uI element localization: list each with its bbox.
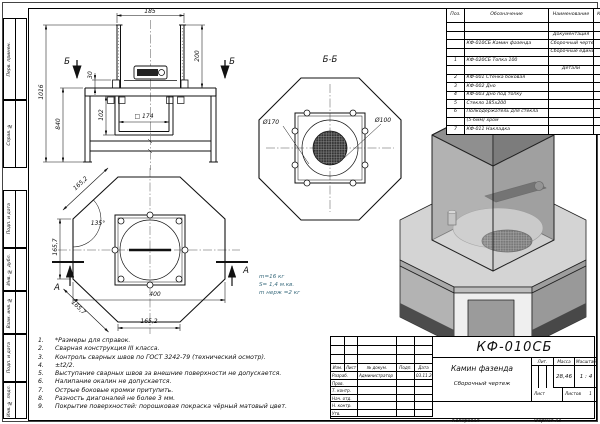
parts-pos xyxy=(447,48,465,57)
change-log-cell xyxy=(415,346,433,355)
parts-designation xyxy=(465,48,549,57)
sig-sign xyxy=(397,395,415,403)
note-text: Острые боковые кромки притупить. xyxy=(55,387,173,395)
signature-area: Изм.Лист№ докум.Подп.Дата Разраб.Админис… xyxy=(331,337,433,417)
section-label: Б xyxy=(229,58,235,67)
parts-designation: КФ-010СБ Камин фазенда xyxy=(465,40,549,49)
change-log-cell xyxy=(345,337,358,346)
sig-sign xyxy=(397,402,415,410)
margin-cell-label: Перв. примен. xyxy=(7,42,12,77)
parts-designation: Полкодержатель для стекла xyxy=(465,108,549,117)
margin-cell-sign-col xyxy=(16,101,26,167)
signature-row: Пров. xyxy=(331,380,433,388)
parts-name xyxy=(549,57,594,66)
parts-pos xyxy=(447,23,465,32)
dim-label: 400 xyxy=(149,292,160,298)
margin-cell-label-col: Подп. и дата xyxy=(4,335,16,381)
margin-cell-sign-col xyxy=(16,191,26,247)
parts-row: Документация xyxy=(447,31,600,40)
company-cell xyxy=(433,401,596,419)
sig-docnum: Администратор xyxy=(358,372,397,380)
parts-pos: 1 xyxy=(447,57,465,66)
parts-designation: КФ-001 Стенка боковая xyxy=(465,74,549,83)
parts-qty: 1 xyxy=(594,83,600,92)
parts-designation: КФ-011 Накладка xyxy=(465,126,549,135)
sig-sign xyxy=(397,372,415,380)
signature-header-cell: № докум. xyxy=(358,364,397,372)
iso-view xyxy=(400,104,586,344)
note-number: 1. xyxy=(38,337,48,345)
parts-name: Сборочные единицы xyxy=(549,48,594,57)
sig-date xyxy=(415,380,433,388)
change-log-cell xyxy=(345,346,358,355)
parts-table: Поз.ОбозначениеНаименованиеКол. Документ… xyxy=(446,8,600,135)
parts-name xyxy=(549,108,594,117)
margin-cell-sign-col xyxy=(16,249,26,290)
sheets-label: Листов xyxy=(563,388,584,401)
parts-row: 2КФ-001 Стенка боковая2 xyxy=(447,74,600,83)
note-number: 6. xyxy=(38,378,48,386)
document-number: КФ-010СБ xyxy=(433,337,596,358)
signature-row: Разраб.Администратор03.11.20 xyxy=(331,372,433,380)
note-number: 9. xyxy=(38,403,48,411)
change-log-cell xyxy=(358,346,397,355)
parts-name xyxy=(549,91,594,100)
notes-list: 1.*Размеры для справок.2.Сварная констру… xyxy=(38,337,338,412)
parts-qty: 4 xyxy=(594,100,600,109)
note-number: 2. xyxy=(38,345,48,353)
change-log-cell xyxy=(397,355,415,364)
parts-row: 4КФ-003 Дно под топку1 xyxy=(447,91,600,100)
parts-row: Детали xyxy=(447,65,600,74)
margin-cell-sign-col xyxy=(16,292,26,333)
parts-qty xyxy=(594,65,600,74)
parts-pos xyxy=(447,31,465,40)
signature-row: Утв. xyxy=(331,410,433,418)
sig-date xyxy=(415,410,433,418)
parts-col-header: Обозначение xyxy=(465,9,549,23)
change-log-cell xyxy=(397,346,415,355)
change-log-cell xyxy=(358,355,397,364)
note-number: 3. xyxy=(38,354,48,362)
document-type: Сборочный чертеж xyxy=(433,381,531,387)
signature-header-cell: Лист xyxy=(345,364,358,372)
parts-pos: 7 xyxy=(447,126,465,135)
parts-designation: КФ-020СБ Топка 100 xyxy=(465,57,549,66)
parts-row: Сборочные единицы xyxy=(447,48,600,57)
signature-header-cell: Изм. xyxy=(331,364,345,372)
section-label: Б xyxy=(64,58,70,67)
sig-docnum xyxy=(358,402,397,410)
parts-pos: 3 xyxy=(447,83,465,92)
scale-value: 1 : 4 xyxy=(575,366,597,388)
sig-docnum xyxy=(358,387,397,395)
change-log-grid xyxy=(331,337,433,364)
sig-date xyxy=(415,395,433,403)
note-number: 4. xyxy=(38,362,48,370)
dim-label: Ø100 xyxy=(375,118,391,124)
change-log-cell xyxy=(345,355,358,364)
dim-label: 165,7 xyxy=(53,238,59,255)
dim-label: 102 xyxy=(99,109,105,120)
margin-cell-label-col: Взам. инв. № xyxy=(4,292,16,333)
annotation-line: m=16 кг xyxy=(259,275,284,281)
parts-qty xyxy=(594,23,600,32)
mass-value: 28,46 xyxy=(554,366,575,388)
annotation-line: S= 1,4 м.кв. xyxy=(259,283,294,289)
margin-cell-label: Взам. инв. № xyxy=(7,297,12,328)
change-log-cell xyxy=(331,346,345,355)
dim-label: 30 xyxy=(88,71,94,79)
note-number: 8. xyxy=(38,395,48,403)
margin-cell-label: Подп. и дата xyxy=(7,203,12,234)
dim-label: 135° xyxy=(91,221,105,227)
parts-row: КФ-010СБ Камин фазендаСборочный чертеж1 xyxy=(447,40,600,49)
margin-cell: Подп. и дата xyxy=(3,190,27,248)
dim-label: Ø170 xyxy=(263,120,279,126)
parts-designation: (5-6мм) хром xyxy=(465,117,549,126)
note-item: 6.Налипание окалин не допускается. xyxy=(38,378,338,386)
change-log-cell xyxy=(358,337,397,346)
lit-cell xyxy=(539,366,546,388)
sig-date xyxy=(415,387,433,395)
parts-name: Документация xyxy=(549,31,594,40)
parts-qty: 1 xyxy=(594,91,600,100)
signature-rows: Разраб.Администратор03.11.20Пров.Т. конт… xyxy=(331,372,433,417)
signature-row: Нач. отд. xyxy=(331,395,433,403)
dim-label: 165,2 xyxy=(140,319,157,325)
parts-pos xyxy=(447,40,465,49)
parts-name xyxy=(549,100,594,109)
parts-qty: 1 xyxy=(594,57,600,66)
parts-pos: 2 xyxy=(447,74,465,83)
margin-cell-sign-col xyxy=(16,19,26,99)
parts-pos: 6 xyxy=(447,108,465,117)
parts-designation: КФ-003 Дно под топку xyxy=(465,91,549,100)
dim-label: 200 xyxy=(195,50,201,61)
section-label: Б-Б xyxy=(323,56,338,65)
lit-cell xyxy=(547,366,554,388)
margin-cell-label: Инв. № дубл. xyxy=(7,254,12,286)
sig-docnum xyxy=(358,380,397,388)
margin-cell: Справ. № xyxy=(3,100,27,168)
parts-row: 1КФ-020СБ Топка 1001 xyxy=(447,57,600,66)
sig-role: Нач. отд. xyxy=(331,395,358,403)
parts-header-row: Поз.ОбозначениеНаименованиеКол. xyxy=(447,9,600,23)
parts-designation: Стекло 185х200 xyxy=(465,100,549,109)
parts-row: 7КФ-011 Накладка2 xyxy=(447,126,600,135)
parts-designation: КФ-002 Дно xyxy=(465,83,549,92)
margin-cell: Взам. инв. № xyxy=(3,291,27,334)
parts-col-header: Кол. xyxy=(594,9,600,23)
parts-col-header: Поз. xyxy=(447,9,465,23)
format-label: Формат А3 xyxy=(534,419,561,424)
note-item: 5.Выступание сварных швов за внешние пов… xyxy=(38,370,338,378)
sig-role: Пров. xyxy=(331,380,358,388)
sig-role: Н. контр. xyxy=(331,402,358,410)
parts-qty xyxy=(594,117,600,126)
margin-cell-sign-col xyxy=(16,335,26,381)
sheet-label: Лист xyxy=(532,388,563,401)
section-label: А xyxy=(54,284,60,293)
parts-name xyxy=(549,83,594,92)
sig-sign xyxy=(397,410,415,418)
parts-designation xyxy=(465,31,549,40)
parts-name: Сборочный чертеж xyxy=(549,40,594,49)
signature-header-cell: Дата xyxy=(415,364,433,372)
front-view xyxy=(43,13,225,170)
note-text: Налипание окалин не допускается. xyxy=(55,378,171,386)
note-text: *Размеры для справок. xyxy=(55,337,130,345)
sig-sign xyxy=(397,387,415,395)
sig-role: Разраб. xyxy=(331,372,358,380)
section-view xyxy=(259,78,401,220)
parts-designation xyxy=(465,23,549,32)
parts-designation xyxy=(465,65,549,74)
note-item: 2.Сварная конструкция III класса. xyxy=(38,345,338,353)
note-text: Покрытие поверхностей: порошковая покрас… xyxy=(55,403,287,411)
parts-pos: 5 xyxy=(447,100,465,109)
note-item: 1.*Размеры для справок. xyxy=(38,337,338,345)
margin-cell: Перв. примен. xyxy=(3,18,27,100)
note-item: 9.Покрытие поверхностей: порошковая покр… xyxy=(38,403,338,411)
lit-label: Лит. xyxy=(532,358,554,366)
dim-label: □ 174 xyxy=(134,114,153,120)
section-label: А xyxy=(243,267,249,276)
scale-label: Масштаб xyxy=(575,358,597,366)
margin-cell-sign-col xyxy=(16,383,26,418)
dim-label: 840 xyxy=(56,118,62,129)
parts-col-header: Наименование xyxy=(549,9,594,23)
parts-name xyxy=(549,117,594,126)
parts-row: (5-6мм) хром xyxy=(447,117,600,126)
note-item: 7.Острые боковые кромки притупить. xyxy=(38,387,338,395)
change-log-cell xyxy=(331,337,345,346)
sig-docnum xyxy=(358,395,397,403)
parts-name xyxy=(549,23,594,32)
change-log-cell xyxy=(331,355,345,364)
mass-label: Масса xyxy=(554,358,575,366)
margin-cell-label: Инв. № подл. xyxy=(7,385,12,417)
margin-cell-label-col: Подп. и дата xyxy=(4,191,16,247)
note-text: Контроль сварных швов по ГОСТ 3242-79 (т… xyxy=(55,354,266,362)
parts-qty: 2 xyxy=(594,74,600,83)
dim-label: 185 xyxy=(144,9,155,15)
margin-cell-label-col: Перв. примен. xyxy=(4,19,16,99)
signature-row: Н. контр. xyxy=(331,402,433,410)
parts-row: 3КФ-002 Дно1 xyxy=(447,83,600,92)
change-log-cell xyxy=(415,337,433,346)
sheets-value: 1 xyxy=(584,388,597,401)
margin-cell-label: Справ. № xyxy=(7,123,12,146)
note-text: Сварная конструкция III класса. xyxy=(55,345,160,353)
note-number: 7. xyxy=(38,387,48,395)
parts-pos xyxy=(447,65,465,74)
document-name-cell: Камин фазенда Сборочный чертеж xyxy=(433,358,531,401)
note-text: ±t2/2. xyxy=(55,362,75,370)
parts-qty xyxy=(594,48,600,57)
dim-label: 1016 xyxy=(39,84,45,99)
parts-qty: 8 xyxy=(594,108,600,117)
change-log-cell xyxy=(415,355,433,364)
margin-cell-label-col: Справ. № xyxy=(4,101,16,167)
sig-sign xyxy=(397,380,415,388)
margin-cell-label-col: Инв. № подл. xyxy=(4,383,16,418)
note-number: 5. xyxy=(38,370,48,378)
margin-cell: Инв. № подл. xyxy=(3,382,27,419)
parts-pos xyxy=(447,117,465,126)
sig-docnum xyxy=(358,410,397,418)
document-title: Камин фазенда xyxy=(433,364,531,373)
margin-cell: Подп. и дата xyxy=(3,334,27,382)
margin-cell-label: Подп. и дата xyxy=(7,342,12,373)
title-block: Изм.Лист№ докум.Подп.Дата Разраб.Админис… xyxy=(330,336,595,419)
signature-header-cell: Подп. xyxy=(397,364,415,372)
margin-cell: Инв. № дубл. xyxy=(3,248,27,291)
title-block-right: Лит. Масса Масштаб 28,46 1 : 4 Лист Лист… xyxy=(531,358,596,401)
sig-role: Т. контр. xyxy=(331,387,358,395)
lit-cell xyxy=(532,366,539,388)
parts-name xyxy=(549,74,594,83)
parts-row: 6Полкодержатель для стекла8 xyxy=(447,108,600,117)
signature-row: Т. контр. xyxy=(331,387,433,395)
drawing-sheet: 185200101684030102□ 174БББ-БØ170Ø100165,… xyxy=(0,0,600,424)
sig-date xyxy=(415,402,433,410)
sig-date: 03.11.20 xyxy=(415,372,433,380)
parts-name xyxy=(549,126,594,135)
note-item: 4.±t2/2. xyxy=(38,362,338,370)
sig-role: Утв. xyxy=(331,410,358,418)
parts-qty: 2 xyxy=(594,126,600,135)
note-item: 3.Контроль сварных швов по ГОСТ 3242-79 … xyxy=(38,354,338,362)
parts-qty xyxy=(594,31,600,40)
parts-pos: 4 xyxy=(447,91,465,100)
annotation-line: m нерж =2 кг xyxy=(259,291,300,297)
signature-header-row: Изм.Лист№ докум.Подп.Дата xyxy=(331,364,433,372)
parts-name: Детали xyxy=(549,65,594,74)
margin-cell-label-col: Инв. № дубл. xyxy=(4,249,16,290)
parts-row xyxy=(447,23,600,32)
note-text: Выступание сварных швов за внешние повер… xyxy=(55,370,281,378)
parts-qty: 1 xyxy=(594,40,600,49)
copied-label: Копировал xyxy=(452,419,479,424)
parts-row: 5Стекло 185х2004 xyxy=(447,100,600,109)
change-log-cell xyxy=(397,337,415,346)
